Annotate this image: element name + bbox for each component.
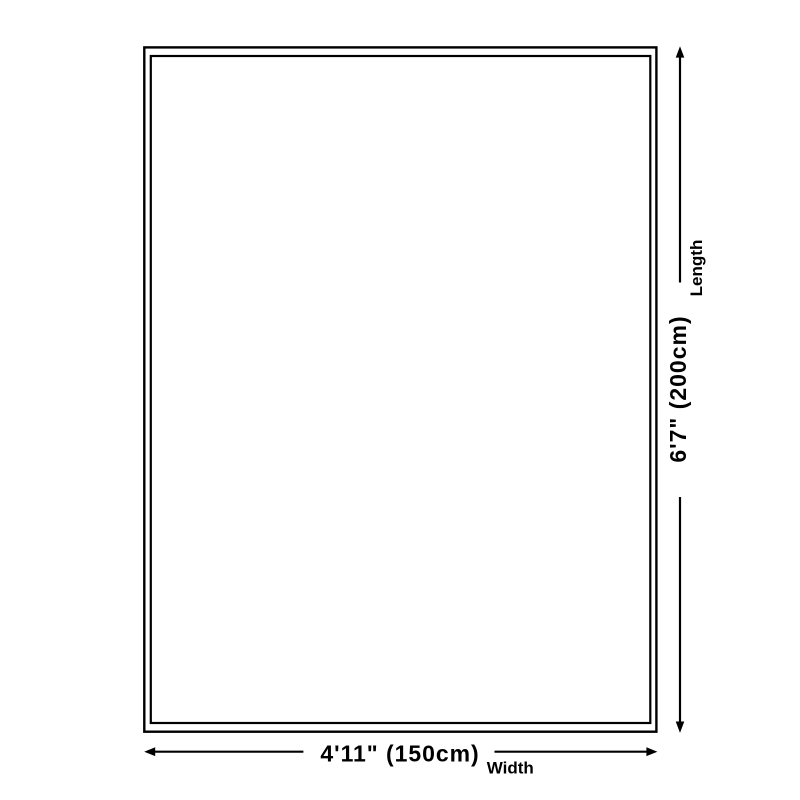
- svg-text:Width: Width: [487, 759, 534, 778]
- svg-text:Length: Length: [687, 240, 706, 297]
- svg-text:4'11" (150cm): 4'11" (150cm): [320, 741, 479, 767]
- svg-text:6'7" (200cm): 6'7" (200cm): [665, 315, 691, 462]
